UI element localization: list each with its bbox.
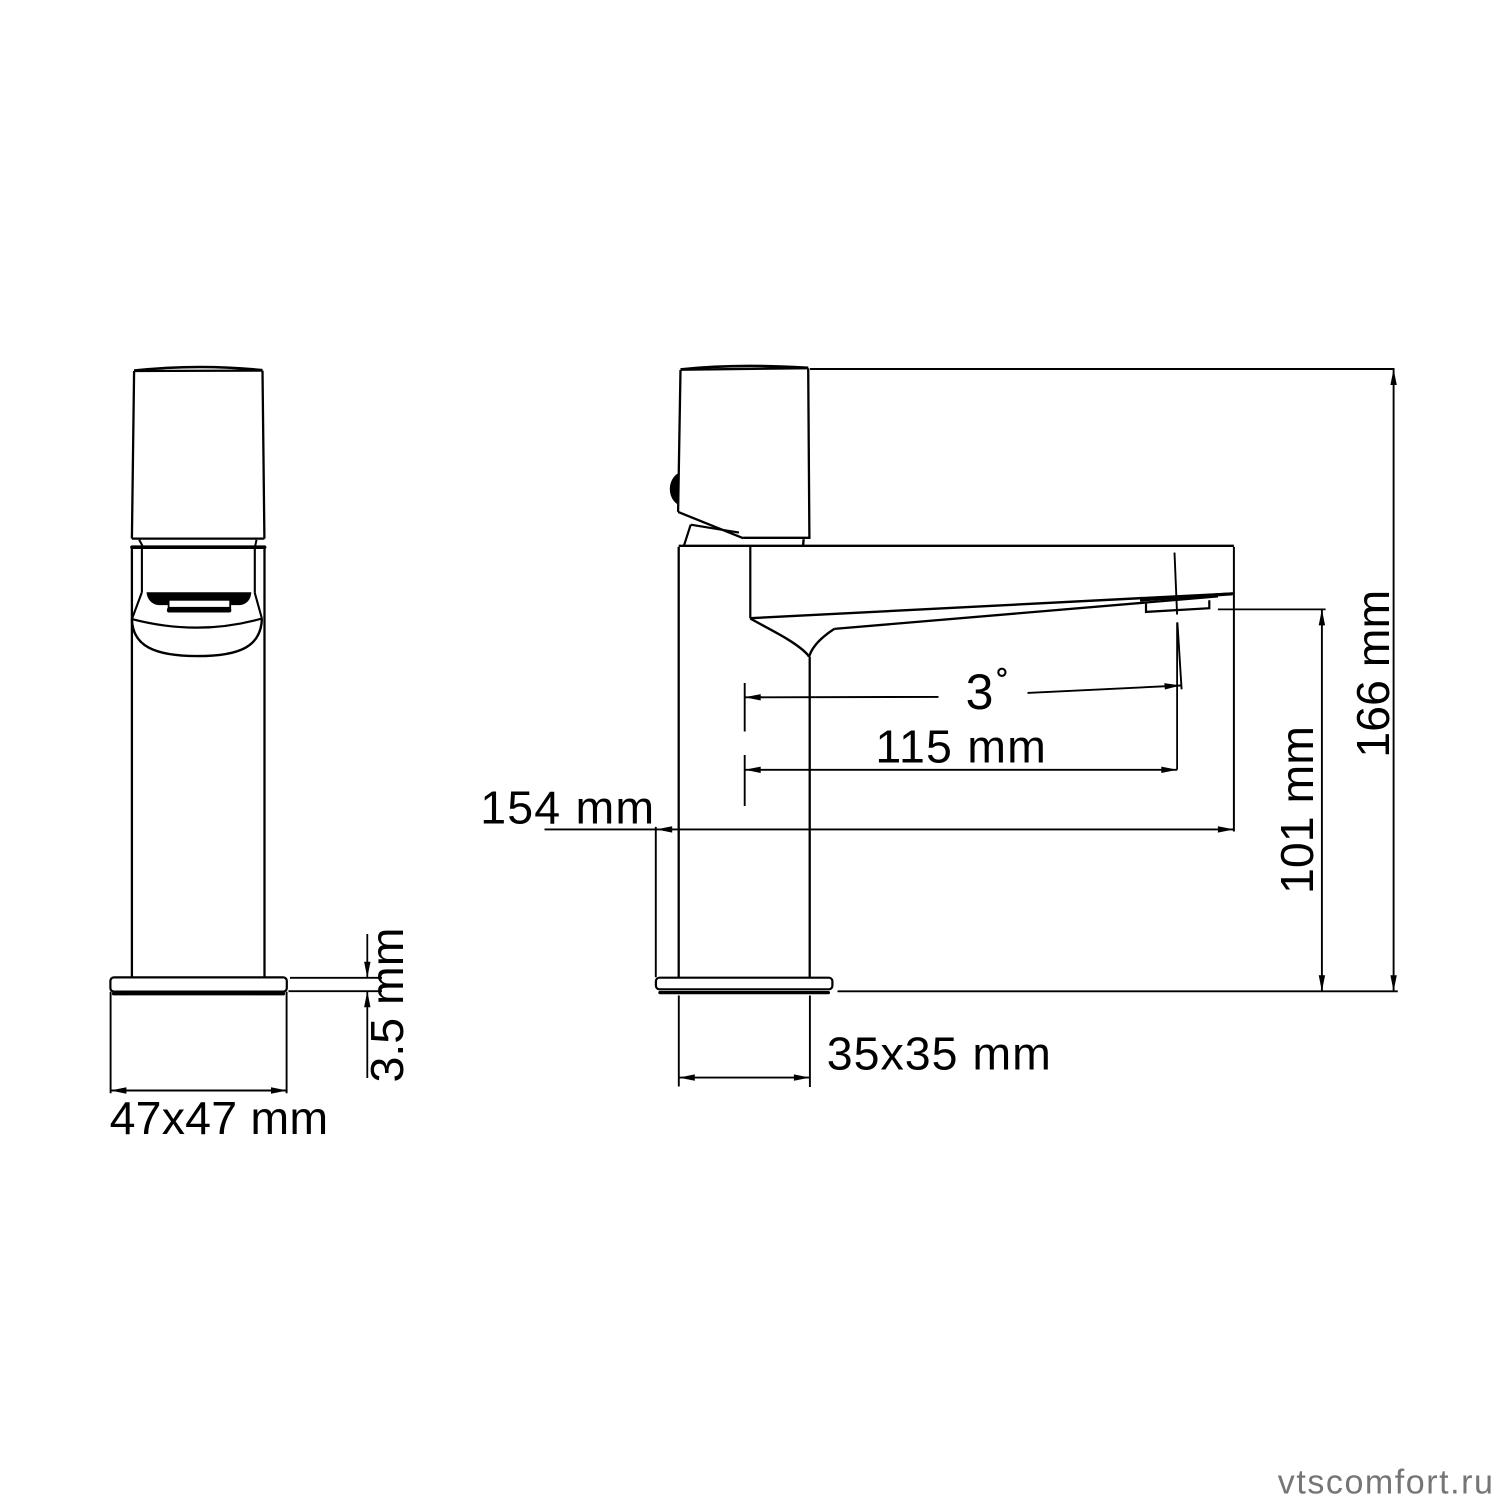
- svg-text:166 mm: 166 mm: [1347, 590, 1399, 758]
- svg-text:154 mm: 154 mm: [480, 782, 655, 834]
- svg-text:35x35 mm: 35x35 mm: [827, 1028, 1052, 1080]
- svg-text:vtscomfort.ru: vtscomfort.ru: [1278, 1464, 1495, 1502]
- svg-text:115 mm: 115 mm: [875, 720, 1047, 772]
- svg-text:47x47 mm: 47x47 mm: [110, 1092, 329, 1144]
- svg-text:3.5 mm: 3.5 mm: [361, 927, 413, 1082]
- svg-text:101 mm: 101 mm: [1271, 726, 1323, 894]
- svg-text:3: 3: [966, 664, 994, 720]
